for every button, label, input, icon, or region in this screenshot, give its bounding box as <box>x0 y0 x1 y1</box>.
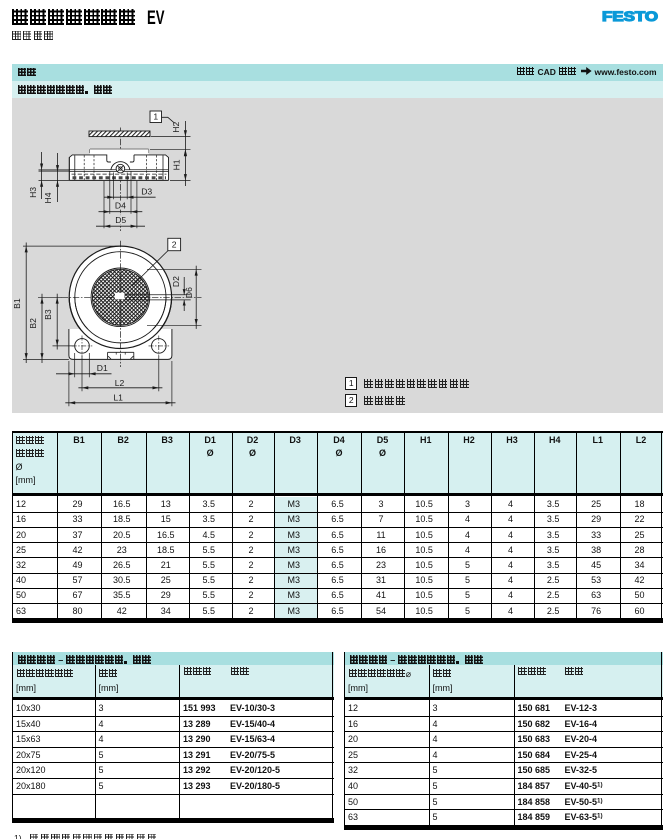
svg-text:B3: B3 <box>43 309 53 320</box>
svg-text:B2: B2 <box>28 318 38 329</box>
svg-text:FESTO: FESTO <box>602 10 658 23</box>
svg-text:H4: H4 <box>43 192 53 203</box>
svg-text:D6: D6 <box>184 287 194 298</box>
svg-text:D2: D2 <box>171 276 181 287</box>
svg-text:H3: H3 <box>28 187 38 198</box>
svg-text:2: 2 <box>172 239 177 249</box>
svg-text:L1: L1 <box>113 392 123 402</box>
svg-text:B1: B1 <box>12 298 22 309</box>
svg-text:D3: D3 <box>141 187 152 197</box>
svg-text:H1: H1 <box>172 159 182 170</box>
svg-text:D4: D4 <box>115 200 126 210</box>
svg-text:D5: D5 <box>115 215 126 225</box>
svg-text:D1: D1 <box>97 363 108 373</box>
svg-text:L2: L2 <box>115 378 125 388</box>
svg-text:H2: H2 <box>171 121 181 132</box>
svg-text:1: 1 <box>153 112 158 122</box>
